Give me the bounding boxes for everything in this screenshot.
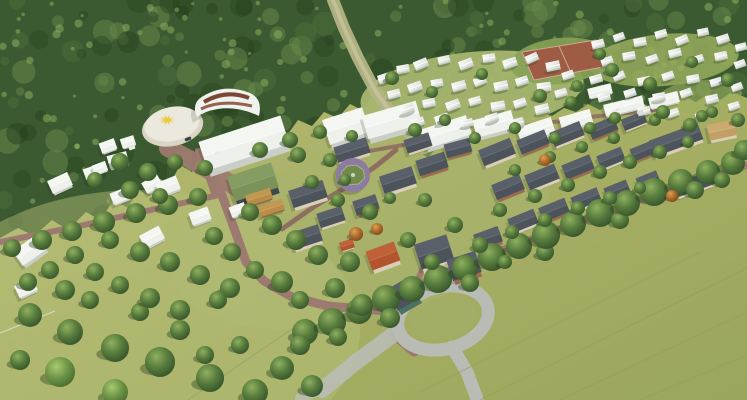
masterplan-scene <box>0 0 747 400</box>
aerial-masterplan-render <box>0 0 747 400</box>
